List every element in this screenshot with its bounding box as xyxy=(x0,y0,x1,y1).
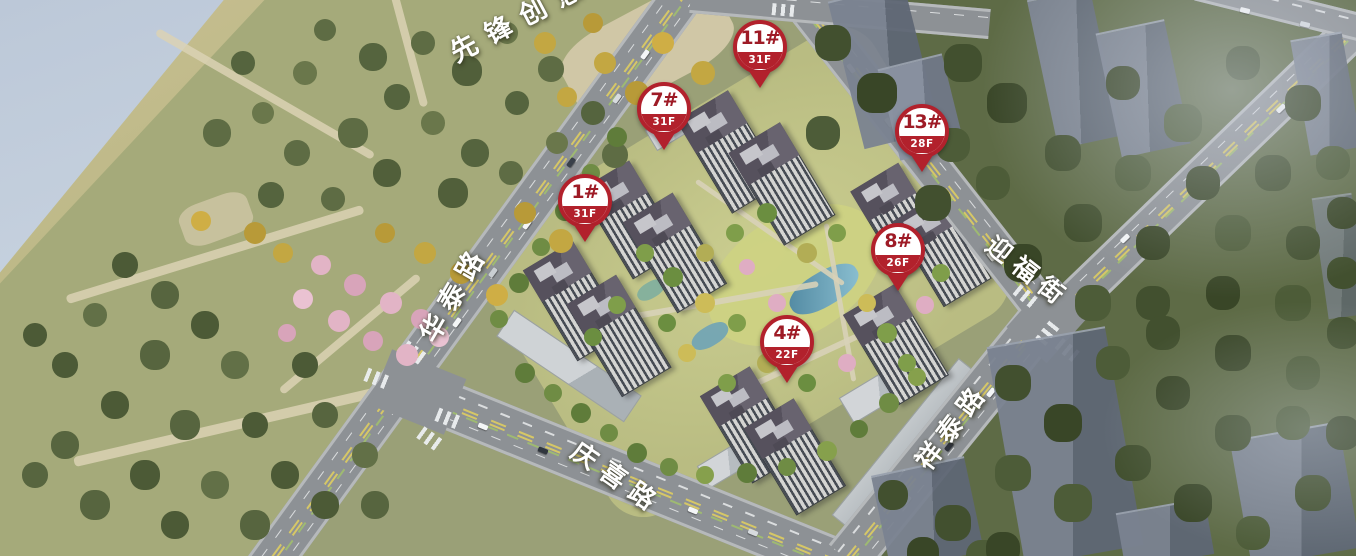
marker-pointer xyxy=(749,71,771,88)
marker-floor-count: 22F xyxy=(764,347,810,364)
marker-floor-count: 31F xyxy=(641,114,687,131)
marker-pointer xyxy=(911,155,933,172)
marker-pointer xyxy=(776,366,798,383)
marker-building-number: 1# xyxy=(562,178,608,206)
marker-building-number: 11# xyxy=(737,24,783,52)
building-marker-4[interactable]: 4# 22F xyxy=(760,315,814,383)
aerial-site-map: 华泰路 庆喜路 祥泰路 迎福街 先锋创意 1# 31F 7# 31F 11# 3… xyxy=(0,0,1356,556)
marker-floor-count: 31F xyxy=(562,206,608,223)
marker-pointer xyxy=(574,225,596,242)
tree-cluster-east-lower xyxy=(0,0,10,10)
marker-building-number: 7# xyxy=(641,86,687,114)
building-marker-1[interactable]: 1# 31F xyxy=(558,174,612,242)
building-marker-13[interactable]: 13# 28F xyxy=(895,104,949,172)
building-marker-7[interactable]: 7# 31F xyxy=(637,82,691,150)
marker-floor-count: 26F xyxy=(875,255,921,272)
massing-building xyxy=(1230,421,1356,556)
building-marker-8[interactable]: 8# 26F xyxy=(871,223,925,291)
marker-bubble: 8# 26F xyxy=(871,223,925,277)
marker-floor-count: 28F xyxy=(899,136,945,153)
marker-pointer xyxy=(653,133,675,150)
marker-bubble: 7# 31F xyxy=(637,82,691,136)
crosswalk xyxy=(772,3,795,17)
marker-bubble: 13# 28F xyxy=(895,104,949,158)
marker-floor-count: 31F xyxy=(737,52,783,69)
marker-building-number: 4# xyxy=(764,319,810,347)
marker-building-number: 13# xyxy=(899,108,945,136)
marker-pointer xyxy=(887,274,909,291)
marker-bubble: 11# 31F xyxy=(733,20,787,74)
marker-bubble: 1# 31F xyxy=(558,174,612,228)
building-marker-11[interactable]: 11# 31F xyxy=(733,20,787,88)
marker-building-number: 8# xyxy=(875,227,921,255)
marker-bubble: 4# 22F xyxy=(760,315,814,369)
